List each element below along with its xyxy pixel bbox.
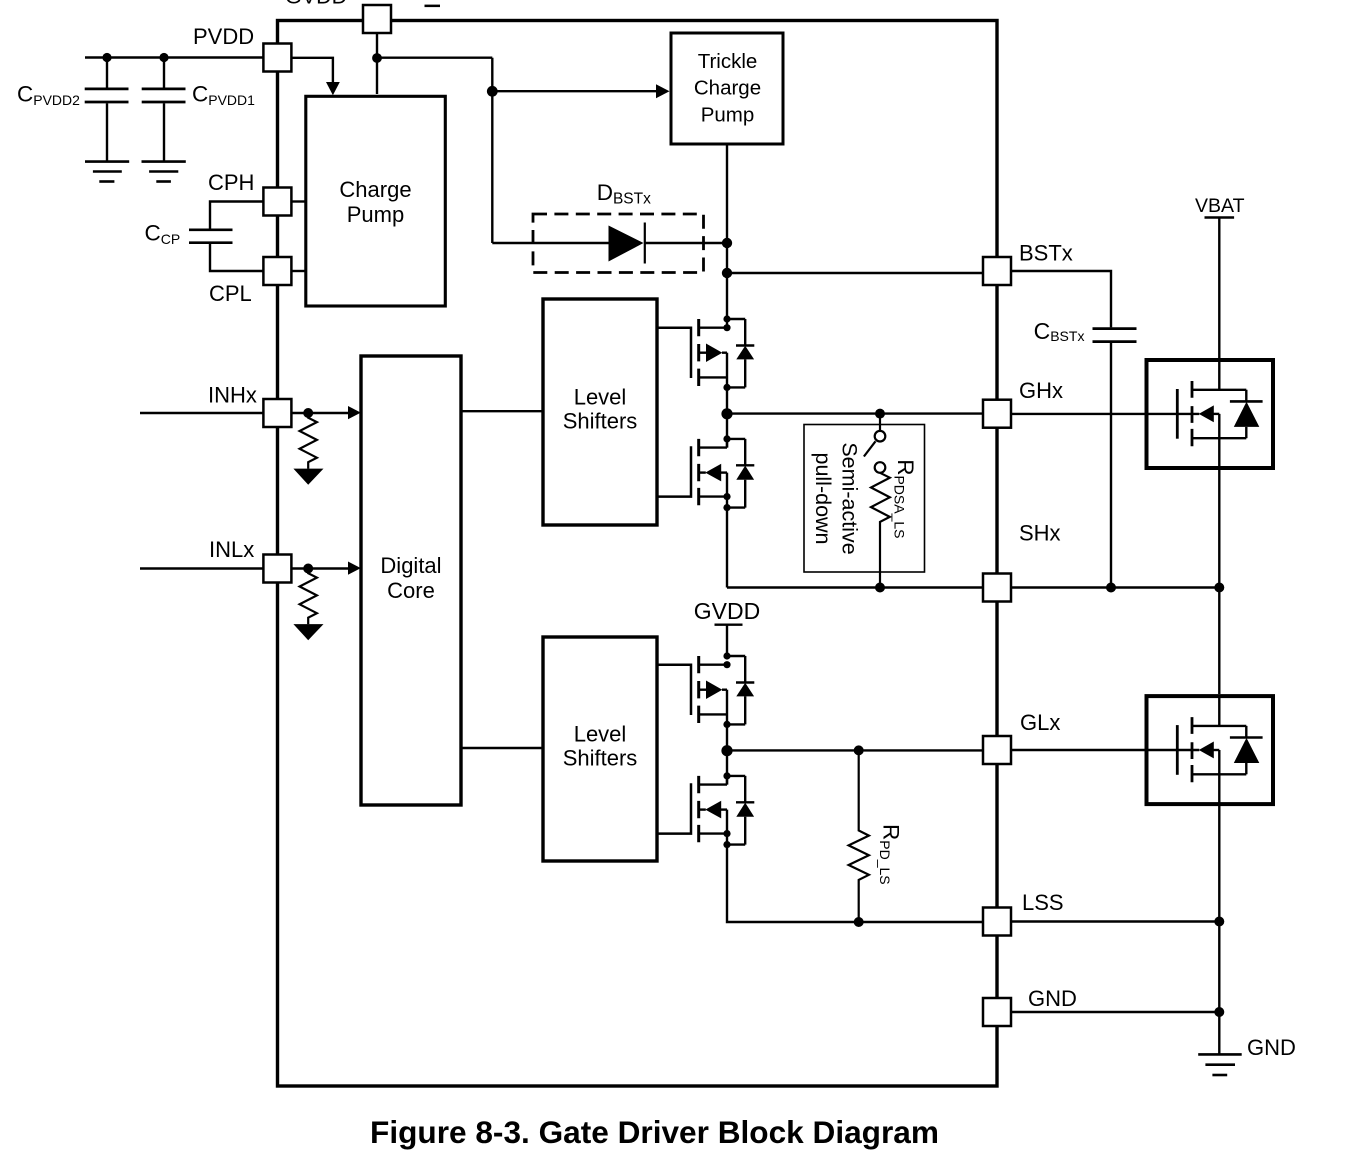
svg-text:CPL: CPL: [209, 281, 252, 306]
svg-text:CBSTx: CBSTx: [1034, 318, 1085, 344]
svg-text:Trickle: Trickle: [698, 50, 758, 73]
svg-text:GVDD: GVDD: [694, 598, 760, 624]
svg-text:GHx: GHx: [1019, 378, 1063, 403]
svg-text:INLx: INLx: [209, 537, 254, 562]
svg-text:GVDD: GVDD: [285, 0, 347, 8]
svg-text:Pump: Pump: [347, 202, 404, 227]
svg-text:PVDD: PVDD: [193, 24, 254, 49]
svg-text:SHx: SHx: [1019, 521, 1061, 546]
svg-text:CPH: CPH: [208, 170, 254, 195]
svg-text:GLx: GLx: [1020, 710, 1060, 735]
svg-text:RPD_LS: RPD_LS: [877, 824, 904, 885]
svg-text:CCP: CCP: [145, 220, 181, 247]
svg-text:RPDSA_LS: RPDSA_LS: [892, 459, 919, 538]
svg-text:CPVDD1: CPVDD1: [192, 82, 255, 109]
svg-text:Shifters: Shifters: [563, 745, 638, 770]
svg-text:Pump: Pump: [701, 103, 755, 126]
svg-text:GND: GND: [1247, 1035, 1296, 1060]
svg-text:INHx: INHx: [208, 383, 257, 408]
svg-text:BSTx: BSTx: [1019, 241, 1073, 266]
svg-text:Charge: Charge: [694, 77, 761, 100]
svg-text:Charge: Charge: [339, 177, 411, 202]
svg-text:Digital: Digital: [380, 553, 441, 578]
svg-text:Level: Level: [574, 721, 627, 746]
svg-text:Level: Level: [574, 384, 627, 409]
svg-text:DBSTx: DBSTx: [597, 180, 651, 208]
svg-text:CPVDD2: CPVDD2: [17, 82, 80, 109]
svg-text:pull-down: pull-down: [811, 452, 835, 544]
svg-text:Semi-active: Semi-active: [838, 442, 862, 554]
svg-text:Figure 8-3. Gate Driver Block: Figure 8-3. Gate Driver Block Diagram: [370, 1114, 939, 1150]
svg-text:Shifters: Shifters: [563, 408, 638, 433]
svg-text:VBAT: VBAT: [1195, 195, 1245, 217]
svg-text:Core: Core: [387, 578, 435, 603]
svg-text:LSS: LSS: [1022, 890, 1064, 915]
svg-text:GND: GND: [1028, 986, 1077, 1011]
